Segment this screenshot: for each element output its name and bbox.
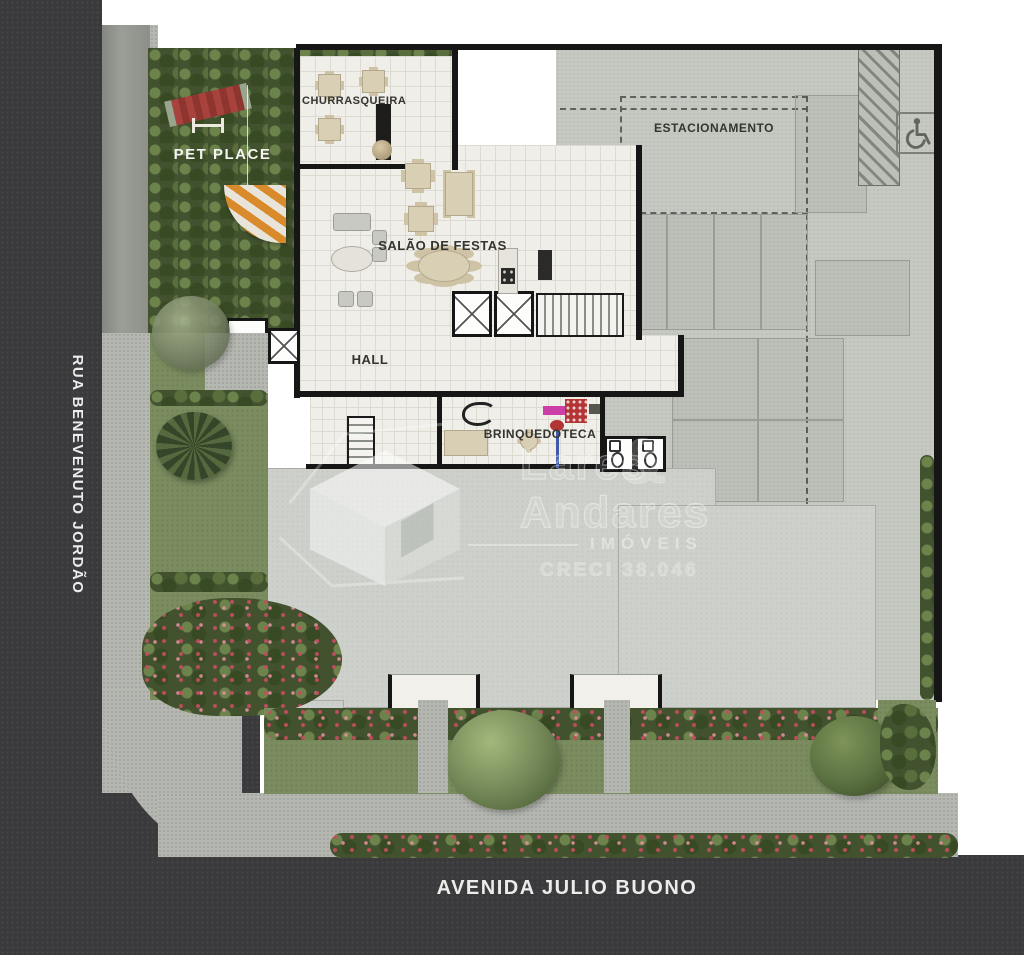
street-left [0, 0, 102, 870]
party-table [408, 206, 434, 232]
wall-churras-right [452, 50, 458, 170]
wall-salao-right [636, 145, 642, 340]
stairs-secondary [347, 416, 375, 466]
left-garden-hedge [150, 390, 268, 406]
pet-agility-bar [192, 118, 224, 133]
armchair [338, 291, 354, 307]
wall-churras-salao [300, 164, 406, 169]
street-bottom [0, 855, 1024, 955]
parking-label-zone [620, 96, 808, 214]
party-table-long [445, 172, 473, 216]
wall-hall-bottom [300, 391, 684, 397]
site-plan: PET PLACE CHURRASQUEIRA SALÃO DE FESTAS … [0, 0, 1024, 955]
toy-box-red [565, 399, 587, 423]
parking-stall [795, 95, 867, 213]
party-table-oval [418, 250, 470, 282]
hall-label: HALL [340, 352, 400, 367]
left-garden-hedge [150, 572, 268, 592]
tree [448, 710, 560, 810]
palm-tree [156, 412, 232, 480]
wall-right [934, 44, 942, 702]
parking-stall [667, 214, 714, 330]
accessible-parking-sign [896, 112, 938, 154]
bbq-table [318, 118, 341, 141]
toilet [644, 452, 657, 468]
parking-stall [714, 214, 761, 330]
service-elevator [268, 328, 300, 364]
bbq-table [318, 74, 341, 97]
sink [642, 440, 654, 452]
sofa [333, 213, 371, 231]
toy-shelf-dark [589, 404, 600, 414]
corner-bushes [142, 598, 342, 716]
parking-ramp [858, 48, 900, 186]
party-table [405, 163, 431, 189]
planter-pot [372, 140, 392, 160]
right-wall-hedge [920, 455, 934, 700]
parking-stall [758, 338, 844, 420]
toilet [611, 452, 624, 468]
stairs [536, 293, 624, 337]
wheelchair-icon [898, 114, 936, 152]
salao-de-festas-label: SALÃO DE FESTAS [360, 238, 525, 253]
elevator [494, 291, 534, 337]
retaining-wall [102, 25, 150, 333]
street-label-left: RUA BENEVENUTO JORDÃO [69, 322, 86, 627]
tree [152, 296, 230, 370]
brinquedoteca-label: BRINQUEDOTECA [455, 427, 625, 441]
walkway [604, 700, 630, 793]
pet-place-label: PET PLACE [150, 146, 295, 163]
kitchen-fridge [538, 250, 552, 280]
wall-top [296, 44, 938, 50]
armchair [357, 291, 373, 307]
street-hedge [330, 833, 958, 858]
sink [609, 440, 621, 452]
bbq-table [362, 70, 385, 93]
elevator [452, 291, 492, 337]
estacionamento-label: ESTACIONAMENTO [620, 121, 808, 135]
parking-stall [815, 260, 910, 336]
wall-brinq-left [437, 395, 442, 469]
parking-stall [758, 420, 844, 502]
walkway [418, 700, 448, 793]
parking-stall [761, 214, 808, 330]
service-room [310, 395, 440, 467]
wall-hall-right [678, 335, 684, 397]
parking-stall [672, 338, 758, 420]
kitchen-stove [501, 268, 515, 284]
churrasqueira-label: CHURRASQUEIRA [302, 95, 452, 107]
street-label-bottom: AVENIDA JULIO BUONO [262, 877, 872, 900]
